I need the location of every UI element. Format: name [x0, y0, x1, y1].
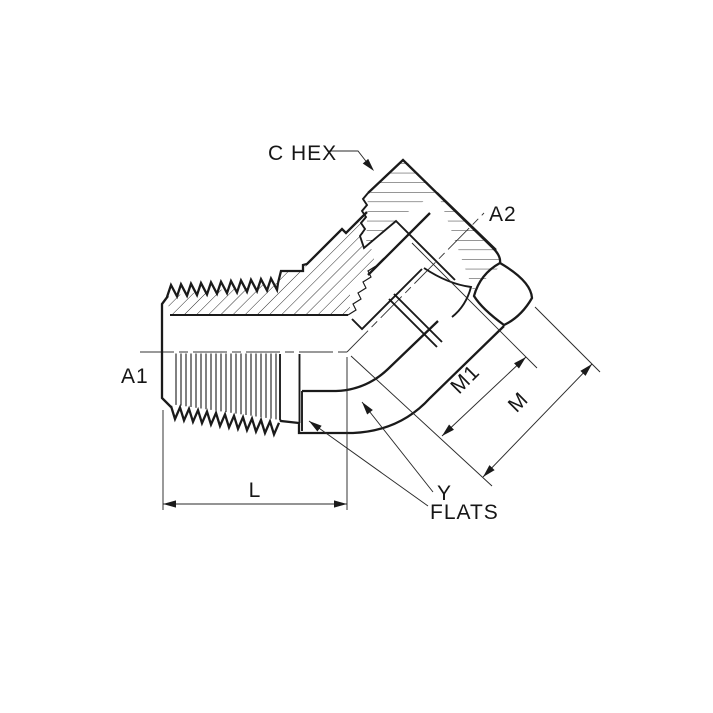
- label-l: L: [249, 479, 262, 502]
- label-c-hex: C HEX: [268, 142, 337, 165]
- drawing-canvas: C HEX A2 A1 L M1 M Y FLATS: [0, 0, 713, 713]
- label-a2: A2: [489, 203, 517, 226]
- background: [0, 0, 713, 713]
- fitting-diagram: C HEX A2 A1 L M1 M Y FLATS: [0, 0, 713, 713]
- label-flats: FLATS: [430, 501, 499, 524]
- label-a1: A1: [121, 365, 149, 388]
